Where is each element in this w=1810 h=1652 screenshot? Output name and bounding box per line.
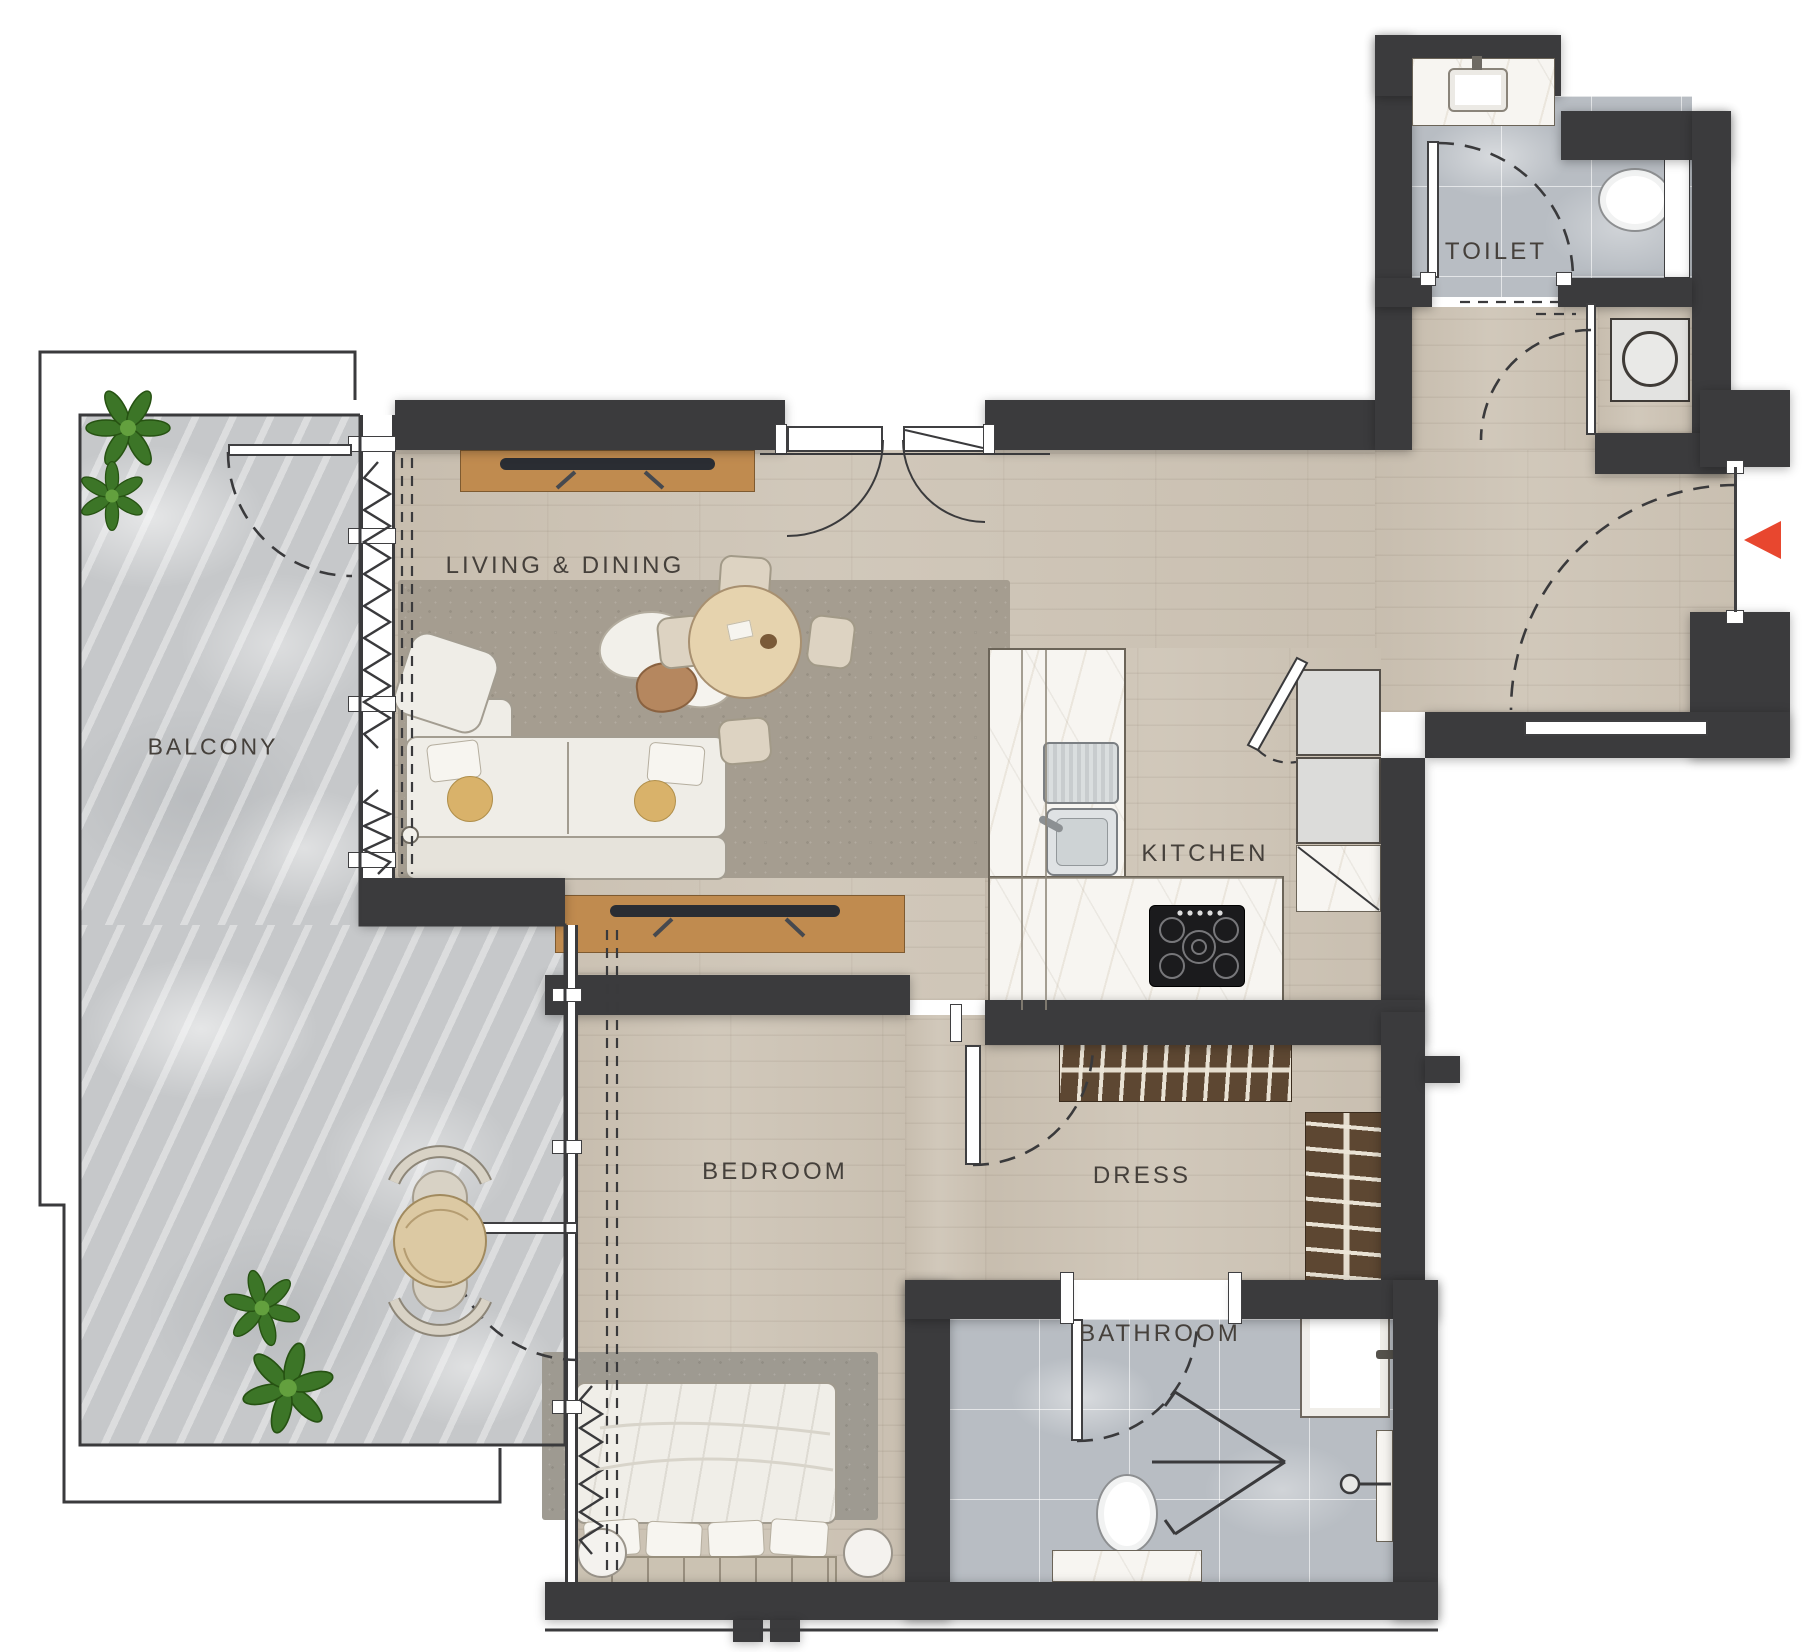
- bathroom-counter: [1052, 1550, 1202, 1582]
- door-bedroom: [965, 1045, 981, 1165]
- bathroom-toilet: [1096, 1474, 1158, 1554]
- tv-console-bedroom: [555, 895, 905, 953]
- wall: [545, 1582, 1438, 1620]
- floor-balcony-upper: [80, 415, 360, 925]
- floor-lobby: [1412, 307, 1598, 450]
- door-entrance: [1524, 720, 1708, 736]
- room-label-toilet: TOILET: [1445, 238, 1547, 266]
- kitchen-sink-drainboard: [1043, 742, 1119, 804]
- kitchen-sink-inner: [1056, 818, 1108, 866]
- wall: [1700, 390, 1790, 467]
- wall: [1425, 1056, 1460, 1083]
- bedside-table: [577, 1528, 627, 1578]
- window-sill: [552, 1140, 582, 1154]
- door-jamb: [1556, 272, 1572, 286]
- window-living: [360, 415, 395, 878]
- floor-hall: [1375, 450, 1736, 712]
- wall: [985, 400, 1375, 450]
- window-bedroom: [565, 925, 578, 1582]
- wall: [1381, 1012, 1425, 1280]
- door-jamb: [983, 424, 995, 454]
- gas-stove: [1149, 905, 1245, 987]
- tv-console-living: [460, 450, 755, 492]
- toilet-wash-basin: [1448, 68, 1508, 112]
- entry-opening-line: [1734, 467, 1737, 612]
- door-laundry: [1586, 303, 1596, 435]
- room-label-bathroom: BATHROOM: [1079, 1320, 1241, 1348]
- room-label-dress: DRESS: [1093, 1162, 1191, 1190]
- door-jamb: [1228, 1272, 1242, 1324]
- kitchen-appliance: [1296, 757, 1381, 844]
- door-jamb: [1420, 272, 1436, 286]
- wall: [1558, 278, 1692, 307]
- sofa-pouf: [634, 780, 676, 822]
- bedside-table: [843, 1528, 893, 1578]
- wall: [905, 1280, 1068, 1319]
- bed-pillow: [769, 1518, 829, 1558]
- wall: [1393, 1280, 1438, 1620]
- wardrobe-side: [1305, 1112, 1388, 1302]
- door-jamb: [1060, 1272, 1074, 1324]
- wall: [905, 1280, 950, 1620]
- room-label-balcony: BALCONY: [148, 734, 279, 761]
- sofa-pouf: [447, 776, 493, 822]
- wall: [545, 975, 910, 1015]
- toilet-basin-faucet: [1472, 56, 1482, 70]
- door-balcony-living: [228, 444, 352, 456]
- entrance-arrow-icon: [1744, 521, 1781, 559]
- bed-pillow: [645, 1521, 703, 1560]
- room-label-living: LIVING & DINING: [446, 552, 685, 580]
- washing-machine-drum: [1622, 331, 1678, 387]
- wall: [770, 1620, 800, 1642]
- wall: [985, 1000, 1425, 1045]
- window-sill: [552, 1400, 582, 1414]
- sofa-back: [405, 836, 727, 880]
- refrigerator: [1296, 669, 1381, 756]
- dining-chair: [717, 716, 773, 766]
- window-sill: [348, 528, 396, 544]
- wall: [1381, 758, 1425, 1012]
- door-jamb: [1726, 610, 1744, 624]
- floor-plan: LIVING & DINING BALCONY KITCHEN TOILET B…: [0, 0, 1810, 1652]
- wall: [733, 1620, 763, 1642]
- dining-table: [688, 585, 802, 699]
- window-sill: [348, 436, 396, 452]
- door-jamb: [775, 424, 787, 454]
- door-balcony-bedroom: [448, 1222, 578, 1234]
- door-double-right: [903, 426, 985, 452]
- door-toilet: [1427, 141, 1439, 278]
- tv-living: [500, 458, 715, 470]
- kitchen-corner-counter: [1296, 845, 1381, 912]
- shower-panel: [1376, 1430, 1393, 1542]
- window-sill: [348, 696, 396, 712]
- window-sill: [552, 988, 582, 1002]
- bed-pillow: [707, 1520, 765, 1559]
- room-label-kitchen: KITCHEN: [1141, 840, 1268, 868]
- door-double-left: [787, 426, 883, 452]
- bed-duvet: [575, 1382, 837, 1524]
- toilet-fixture: [1598, 168, 1672, 232]
- wall: [360, 878, 565, 925]
- door-jamb: [950, 1004, 962, 1042]
- wall: [1375, 35, 1412, 450]
- window-sill: [348, 852, 396, 868]
- dining-chair: [805, 613, 857, 670]
- table-decor: [760, 634, 777, 649]
- wardrobe-top: [1059, 1038, 1292, 1102]
- floor-balcony-lower: [80, 925, 565, 1445]
- tv-bedroom: [610, 905, 840, 917]
- floor-lamp: [401, 826, 419, 844]
- room-label-bedroom: BEDROOM: [702, 1158, 848, 1186]
- wall: [395, 400, 785, 450]
